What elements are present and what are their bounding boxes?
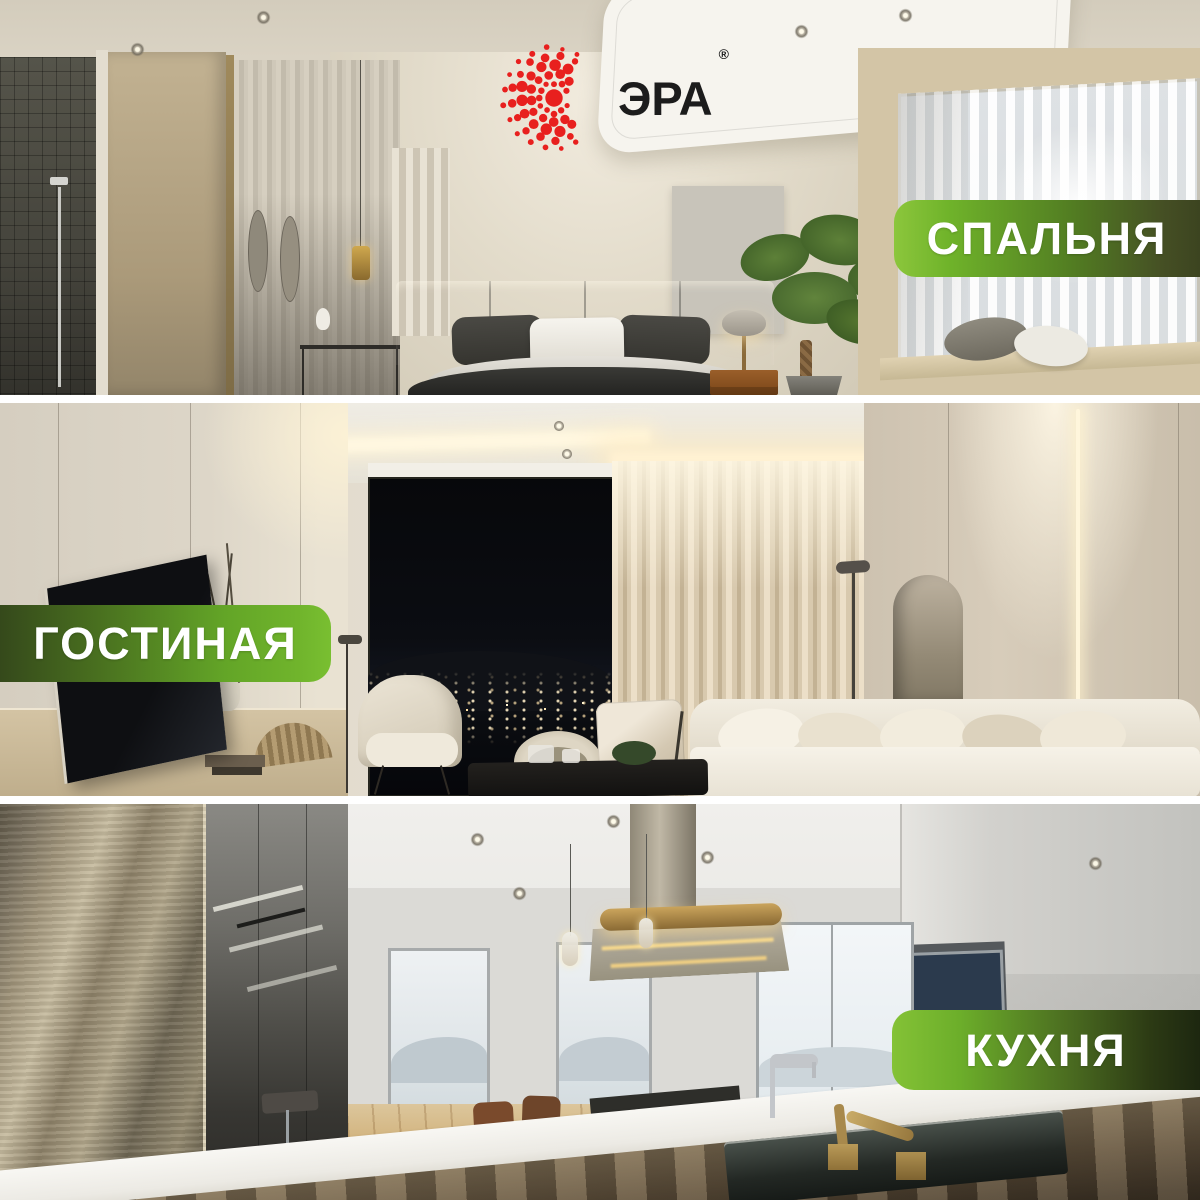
metal-sheen	[0, 804, 206, 1200]
brass-fixture-block	[828, 1144, 858, 1170]
era-brand-text: ЭРА	[618, 71, 713, 126]
gold-trim	[226, 55, 234, 395]
tile-grid	[0, 57, 100, 395]
gooseneck-faucet-arc	[770, 1054, 818, 1068]
window-header	[368, 463, 614, 477]
glass-pendant	[562, 932, 578, 966]
recessed-light	[554, 421, 564, 431]
shower-bar	[58, 187, 61, 387]
promo-collage: ЭРА ® СПАЛЬНЯ	[0, 0, 1200, 1200]
oval-mirror-2	[280, 216, 300, 302]
reflected-light-bar	[247, 965, 337, 992]
oval-mirror-1	[248, 210, 268, 292]
living-room-badge-label: ГОСТИНАЯ	[33, 621, 297, 666]
living-room-badge: ГОСТИНАЯ	[0, 605, 331, 682]
recessed-light	[794, 24, 809, 39]
hills	[559, 1037, 649, 1081]
era-logo: ЭРА ®	[496, 40, 729, 156]
hood-chimney	[630, 804, 696, 908]
armchair-seat	[366, 733, 458, 767]
era-sunburst-icon	[496, 40, 612, 156]
recessed-light	[700, 850, 715, 865]
white-vase	[316, 308, 330, 330]
reflected-light-bar	[229, 924, 323, 952]
books	[212, 767, 262, 775]
wood-nightstand	[710, 370, 778, 395]
floor-lamp-head	[836, 560, 871, 574]
gooseneck-spout	[812, 1062, 816, 1078]
coffee-table	[468, 759, 709, 796]
recessed-light	[130, 42, 145, 57]
bedroom-photo: ЭРА ® СПАЛЬНЯ	[0, 0, 1200, 395]
table-greenery	[612, 741, 656, 765]
hood-light-line	[611, 956, 767, 968]
console-leg-1	[302, 349, 304, 395]
books	[205, 755, 265, 767]
pendant-cord	[360, 60, 361, 246]
living-room-photo: ГОСТИНАЯ	[0, 403, 1200, 796]
kitchen-badge: КУХНЯ	[892, 1010, 1200, 1090]
sofa-seat	[690, 747, 1200, 796]
recessed-light	[470, 832, 485, 847]
light-bar-housing	[237, 908, 306, 929]
hills	[391, 1037, 487, 1083]
cabinet-seam	[258, 804, 259, 1200]
cabinet-glow	[200, 403, 348, 563]
registered-mark: ®	[719, 46, 729, 62]
shower-head	[50, 177, 68, 185]
recessed-light	[898, 8, 913, 23]
recessed-light	[562, 449, 572, 459]
kitchen-photo: КУХНЯ	[0, 804, 1200, 1200]
glassware	[562, 749, 580, 763]
bedroom-badge: СПАЛЬНЯ	[894, 200, 1200, 277]
glass-door-edge	[96, 50, 108, 395]
hood-light-line	[602, 938, 774, 951]
wall-wash-light	[950, 403, 1160, 663]
floor-lamp-pole	[346, 643, 348, 793]
arch-niche	[893, 575, 963, 710]
brushed-metal-panel	[0, 804, 206, 1200]
shower-tile-wall	[0, 57, 100, 395]
recessed-light	[256, 10, 271, 25]
recessed-light	[1088, 856, 1103, 871]
brass-fixture-block	[896, 1152, 926, 1180]
glassware	[528, 745, 554, 763]
bar-stool-seat	[261, 1090, 318, 1114]
bedroom-badge-label: СПАЛЬНЯ	[927, 216, 1168, 261]
tan-wall-panel	[108, 52, 226, 395]
floor-lamp-head	[338, 635, 362, 644]
recessed-light	[606, 814, 621, 829]
table-lamp-shade	[722, 310, 766, 336]
table-lamp-stem	[742, 336, 746, 370]
pendant-cord	[646, 834, 647, 922]
glass-pendant	[639, 918, 653, 948]
kitchen-badge-label: КУХНЯ	[965, 1028, 1126, 1073]
plant-pot	[782, 376, 846, 395]
console-table	[300, 345, 400, 349]
gold-pendant-lamp	[352, 246, 370, 280]
pendant-cord	[570, 844, 571, 936]
recessed-light	[512, 886, 527, 901]
gooseneck-faucet-pole	[770, 1062, 775, 1118]
